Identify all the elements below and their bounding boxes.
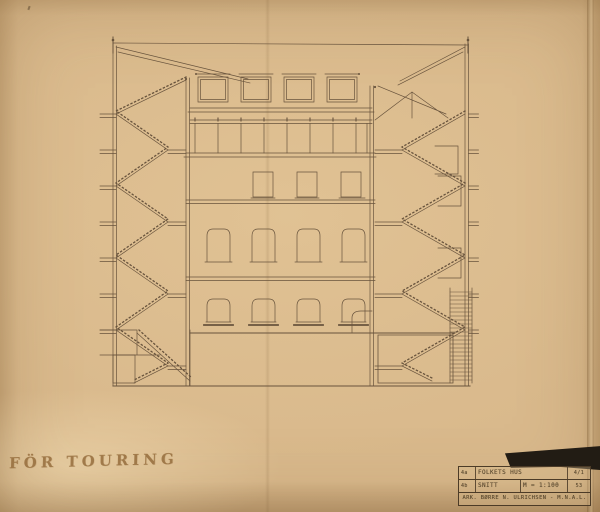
drawing-scale: M = 1:100 [520,480,567,492]
ground-floor-windows [204,299,368,325]
title-block-index: 4b [459,480,476,492]
right-stair-tower [375,44,479,386]
roof [113,37,468,85]
project-name: FOLKETS HUS [476,467,567,479]
third-floor-windows [251,172,365,198]
building-section-drawing [0,0,600,512]
title-block-index: 4a [459,467,476,479]
title-block-row-project: 4a FOLKETS HUS 4/1 [459,467,590,480]
title-block-row-architect: ARK. BØRRE N. ULRICHSEN - M.N.A.L. [459,493,590,505]
attic-windows [196,74,359,102]
window-band [184,118,376,157]
left-stair-tower [100,42,192,386]
title-block-row-drawing: 4b SNITT M = 1:100 53 [459,480,590,493]
aged-paper-sheet: FÖR TOURING 4a FOLKETS HUS 4/1 4b SNITT … [0,0,600,512]
stair-tower-doors [435,146,461,278]
drawing-title: SNITT [476,480,520,492]
sheet-number: 4/1 [567,467,590,479]
basement-room [378,335,453,383]
second-floor-windows [205,229,367,262]
architect-name: ARK. BØRRE N. ULRICHSEN - M.N.A.L. [459,495,590,502]
title-block: 4a FOLKETS HUS 4/1 4b SNITT M = 1:100 53… [458,466,591,506]
drawing-number: 53 [567,480,590,492]
